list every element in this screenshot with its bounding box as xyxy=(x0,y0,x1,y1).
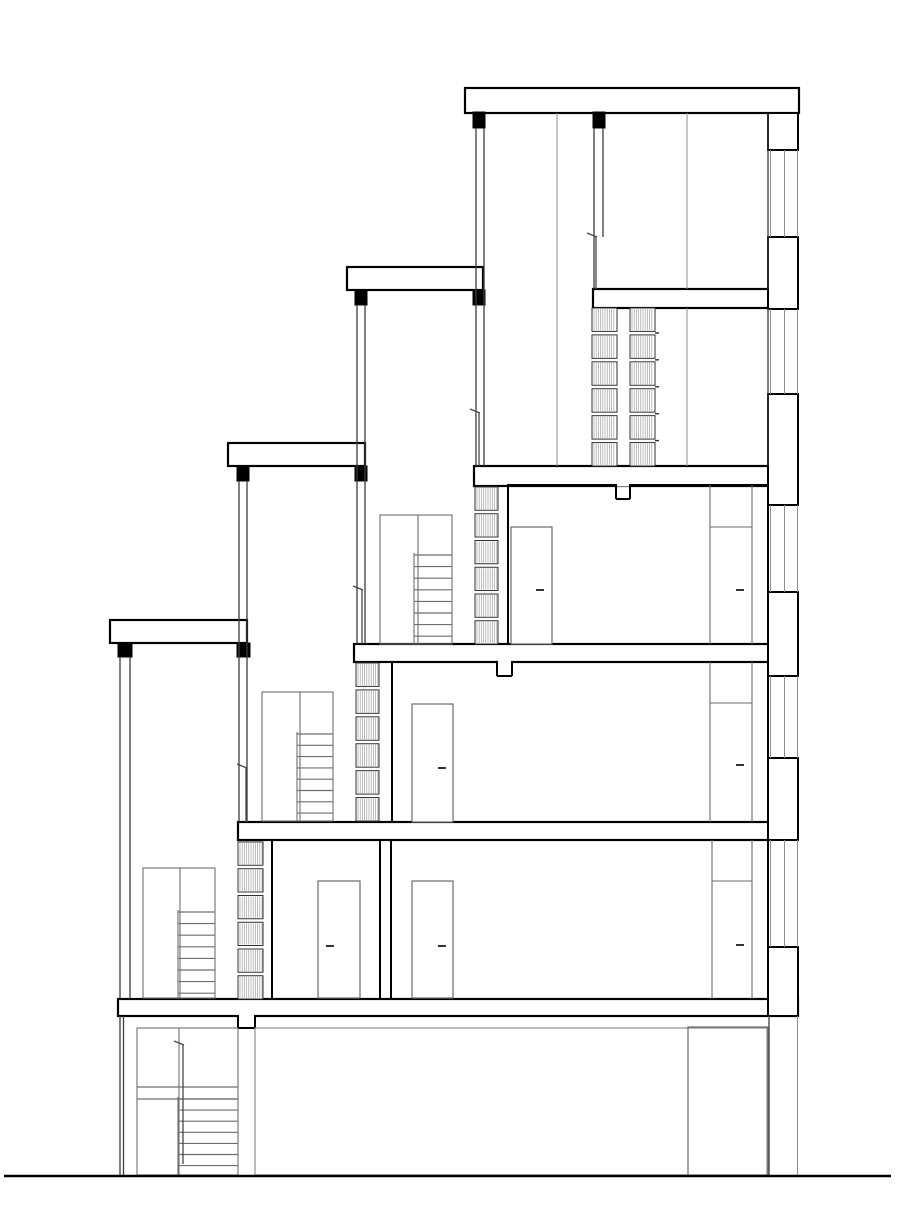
terrace-parapet-2 xyxy=(347,267,483,290)
balustrade-panel xyxy=(238,949,263,972)
balustrade-panel xyxy=(630,443,655,466)
architectural-section-drawing xyxy=(0,0,912,1232)
balustrade-panel xyxy=(238,976,263,999)
terrace-parapet-3 xyxy=(228,443,365,466)
wall-post xyxy=(473,290,485,305)
notch-mask xyxy=(239,1015,254,1018)
floor-slab-2 xyxy=(354,644,770,662)
handrail-tick xyxy=(353,586,363,590)
balustrade-panel xyxy=(592,416,617,439)
balustrade-panel xyxy=(630,362,655,385)
wall-post xyxy=(237,466,249,481)
section-drawing-canvas xyxy=(0,0,912,1232)
balustrade-panel xyxy=(238,896,263,919)
notch-mask xyxy=(498,661,511,664)
stair-enclosure xyxy=(143,868,215,998)
handrail-tick xyxy=(587,233,597,237)
balustrade-panel xyxy=(238,842,263,865)
balustrade-panel xyxy=(592,389,617,412)
floor-slab-3 xyxy=(474,466,770,486)
terrace-parapet-4 xyxy=(110,620,247,643)
door xyxy=(412,881,453,998)
handrail-tick xyxy=(470,409,480,413)
floor-slab-0 xyxy=(118,999,798,1016)
facade-wall-segment xyxy=(768,237,798,309)
facade-wall-segment xyxy=(768,947,798,1016)
balustrade-panel xyxy=(238,922,263,945)
door xyxy=(511,527,552,644)
balustrade-panel xyxy=(630,389,655,412)
ground-floor-hall-outline xyxy=(255,1028,767,1175)
wall-post xyxy=(473,112,485,128)
facade-wall-segment xyxy=(768,113,798,150)
balustrade-panel xyxy=(630,335,655,358)
wall-post xyxy=(118,643,132,657)
door xyxy=(412,704,453,822)
balustrade-panel xyxy=(592,362,617,385)
balustrade-panel xyxy=(238,869,263,892)
balustrade-panel xyxy=(630,308,655,331)
floor-slab-4 xyxy=(593,289,770,308)
stair-enclosure xyxy=(137,1028,238,1175)
wall-post xyxy=(593,112,605,128)
facade-wall-segment xyxy=(768,592,798,676)
balustrade-panel xyxy=(592,308,617,331)
balustrade-panel xyxy=(630,416,655,439)
floor-slab-1 xyxy=(238,822,770,840)
notch-mask xyxy=(617,484,629,487)
door xyxy=(318,881,360,998)
balustrade-panel xyxy=(592,335,617,358)
facade-wall-segment xyxy=(768,758,798,840)
ground-floor-opening xyxy=(688,1027,768,1176)
balustrade-panel xyxy=(592,443,617,466)
facade-wall-segment xyxy=(768,394,798,505)
wall-post xyxy=(355,290,367,305)
roof-slab xyxy=(465,88,799,113)
